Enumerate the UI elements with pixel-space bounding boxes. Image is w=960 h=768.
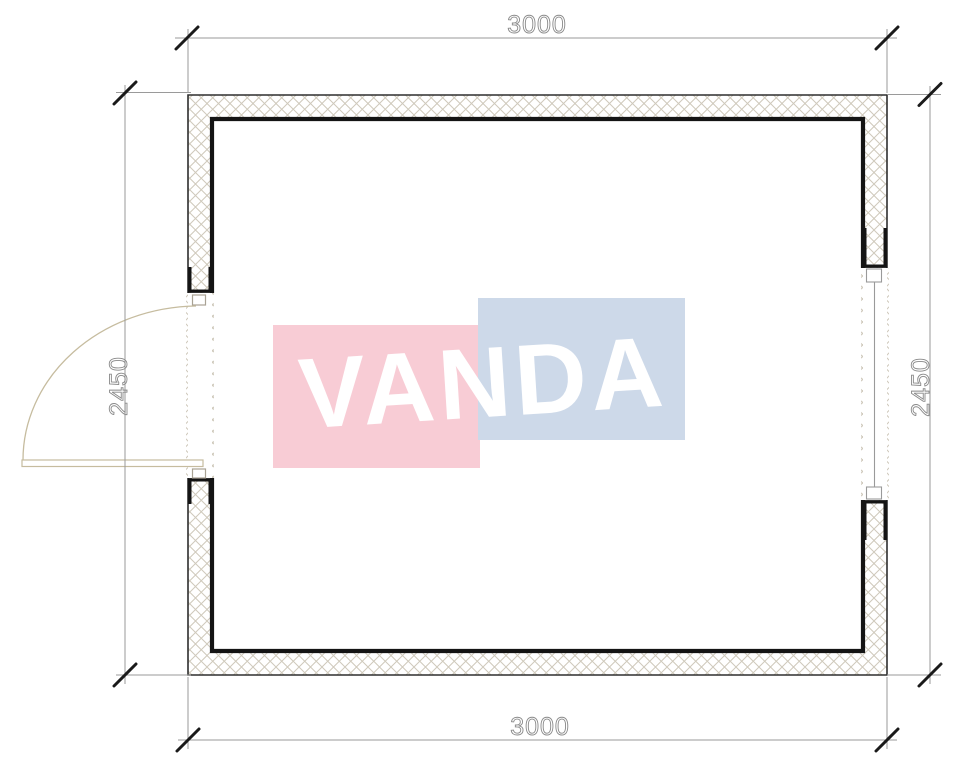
door-frame-bottom — [193, 469, 206, 478]
watermark-text: VANDA — [296, 316, 670, 451]
window — [867, 269, 882, 499]
door-leaf — [22, 460, 203, 467]
dimension-bottom-label: 3000 — [510, 713, 570, 741]
window-frame-bottom — [867, 487, 882, 499]
watermark: VANDA — [273, 298, 685, 468]
dimension-left-label: 2450 — [105, 356, 133, 416]
floor-plan-canvas: VANDA 3000 3000 — [0, 0, 960, 768]
dimension-top-label: 3000 — [507, 11, 567, 39]
dimension-right-label: 2450 — [907, 357, 935, 417]
dimension-left: 2450 — [105, 82, 191, 686]
window-frame-top — [867, 269, 882, 282]
floor-plan-page: VANDA 3000 3000 — [0, 0, 960, 768]
dimension-bottom: 3000 — [177, 677, 898, 751]
dimension-top: 3000 — [175, 11, 898, 93]
door-frame-top — [193, 295, 206, 305]
dimension-right: 2450 — [887, 84, 941, 687]
